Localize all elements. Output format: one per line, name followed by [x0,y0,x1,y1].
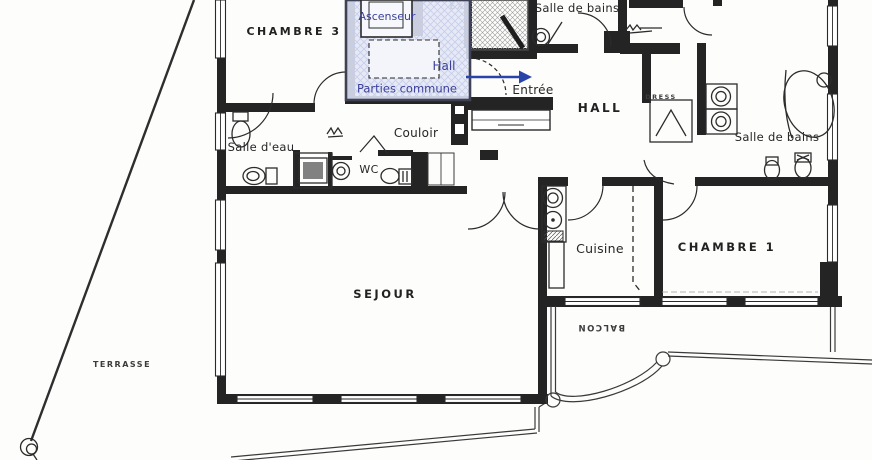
balcony-outline [546,292,872,407]
stairs-dashed-box [369,40,439,78]
room-label-wc: WC [359,163,378,176]
radiator-mark-couloir [327,128,343,137]
floor-plan-scan: CHAMBRE 3 Salle de bains HALL Entrée Cou… [0,0,872,460]
walls [217,0,842,404]
parties-communes-overlay: Ascenseur Hall Parties commune [346,0,470,100]
room-label-cuisine: Cuisine [576,241,624,256]
room-label-entree: Entrée [512,83,553,97]
dressing-closet [650,100,692,142]
room-label-chambre1: CHAMBRE 1 [678,240,776,254]
overlay-label-hall: Hall [432,59,455,73]
room-label-dress: DRESS [645,93,676,101]
overlay-label-parties-communes: Parties commune [357,82,457,96]
room-label-sejour: SEJOUR [353,287,416,301]
stairwell [470,0,528,50]
entrance-arrow-icon [466,71,532,84]
room-label-salle-de-bains-right: Salle de bains [735,130,820,144]
wc-toilet [381,169,412,185]
room-label-hall: HALL [578,101,623,115]
toilet [243,168,277,185]
room-label-terrasse: TERRASSE [93,360,151,369]
room-label-couloir: Couloir [394,126,438,140]
entry-closet [428,97,553,185]
washbasin [333,163,350,180]
radiator-mark-hall [626,25,662,33]
windows [216,0,838,403]
bidet [765,157,780,180]
room-label-salle-deau: Salle d'eau [228,140,295,154]
room-label-chambre3: CHAMBRE 3 [246,25,341,38]
room-label-balcon: BALCON [577,322,625,332]
kitchen-counter [542,186,641,292]
overlay-label-ascenseur: Ascenseur [358,10,416,23]
double-washbasins [706,84,737,134]
toilet-2 [795,153,811,178]
room-label-salle-de-bains-top: Salle de bains [535,1,620,15]
